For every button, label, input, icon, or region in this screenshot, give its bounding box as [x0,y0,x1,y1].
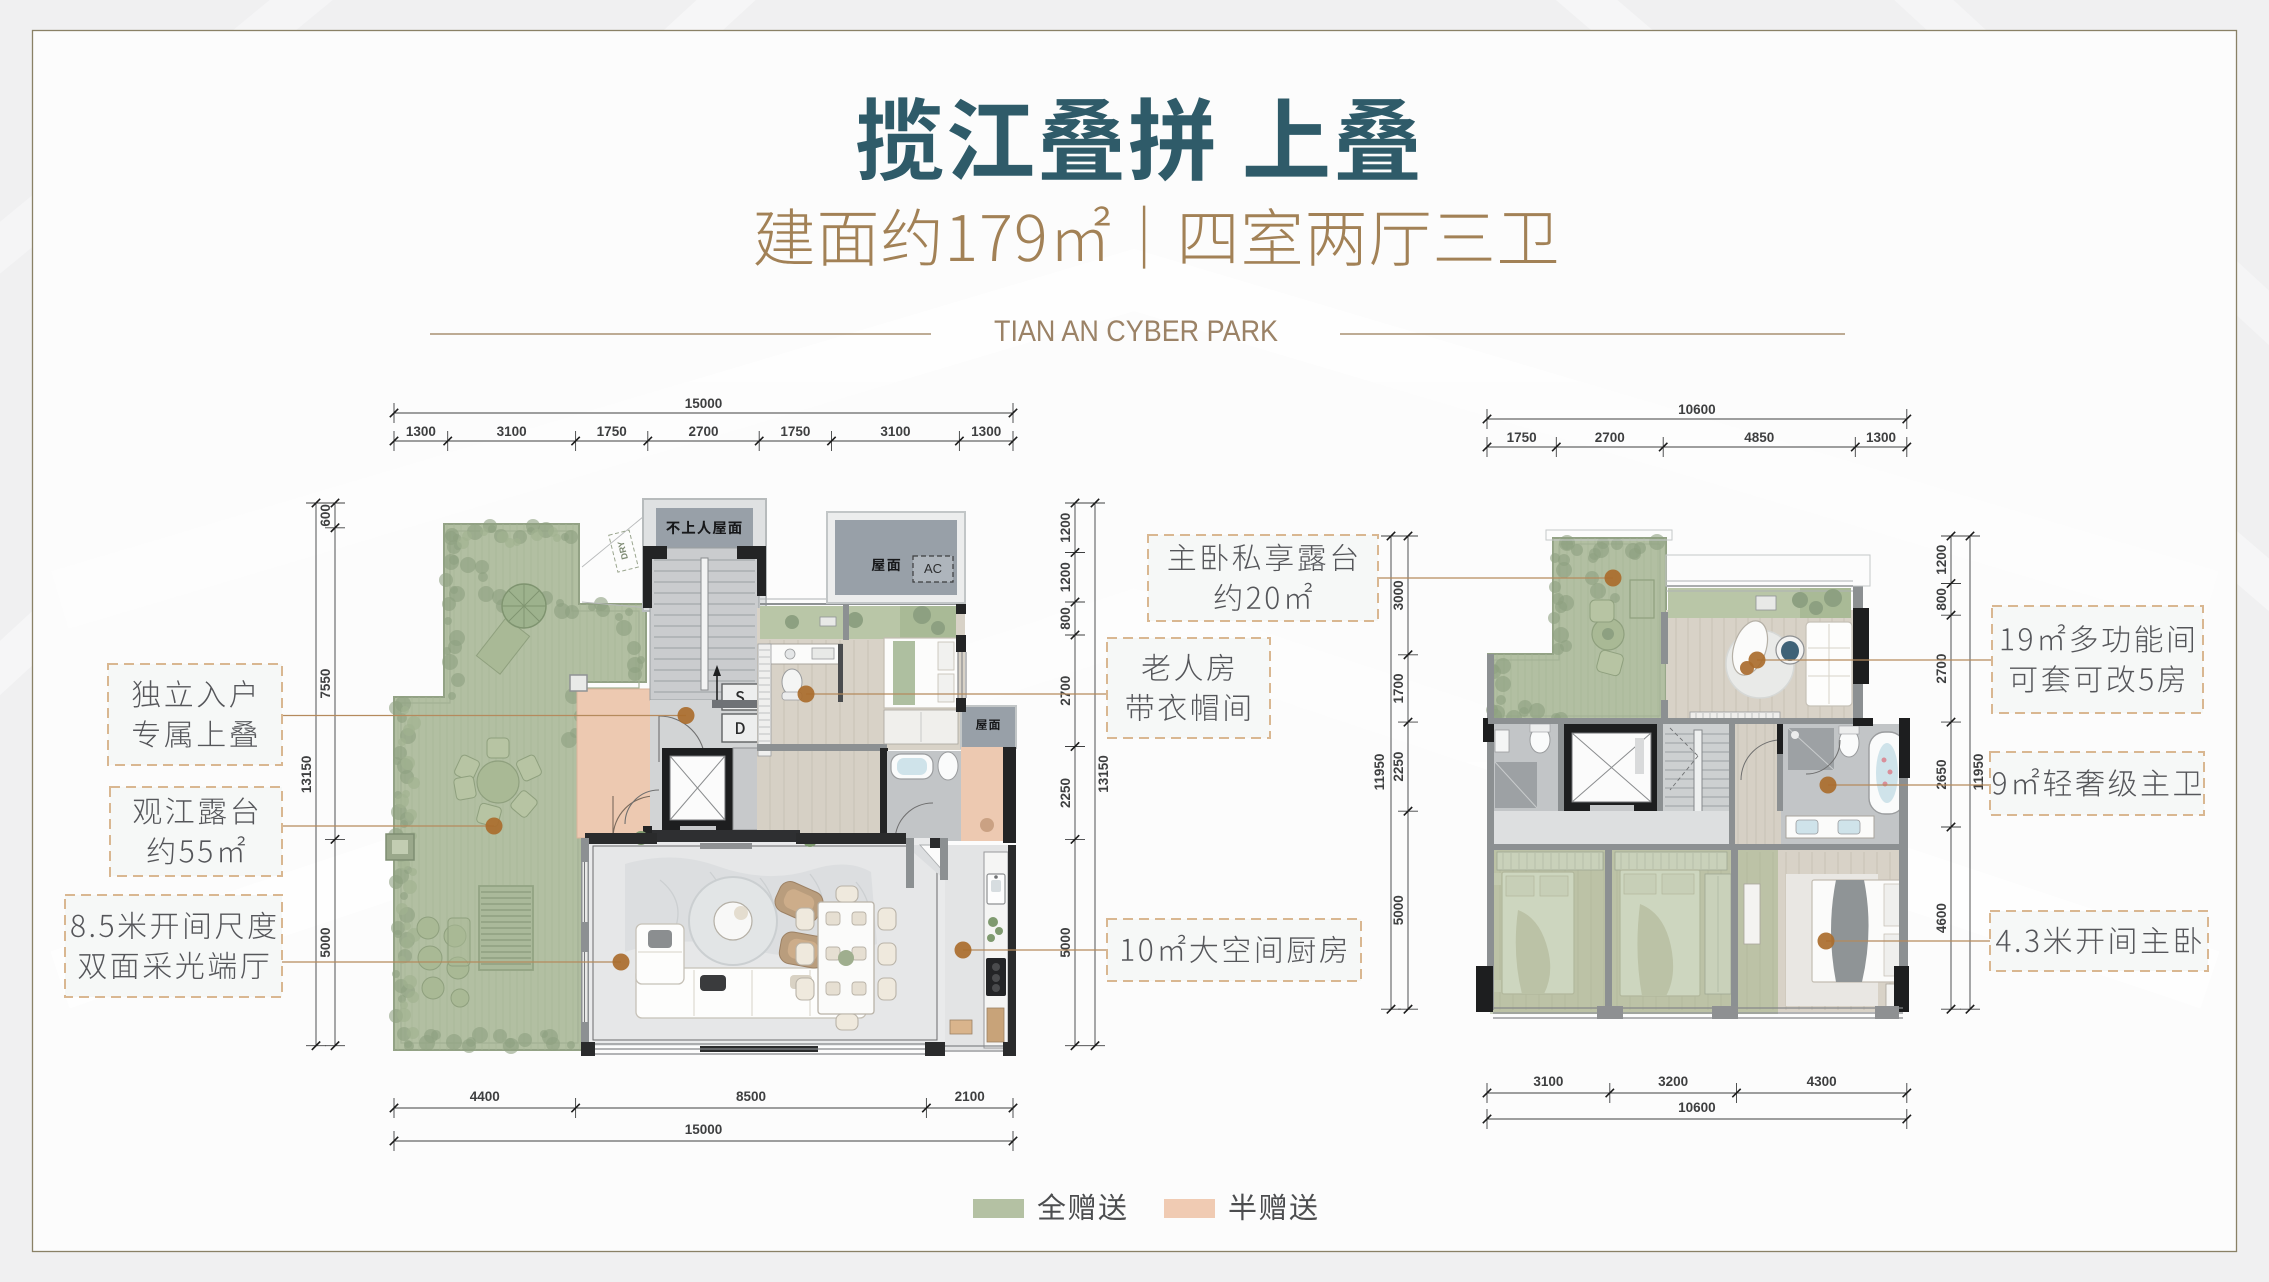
svg-text:2250: 2250 [1058,778,1073,808]
svg-text:1200: 1200 [1058,562,1073,592]
svg-text:2700: 2700 [1934,654,1949,684]
svg-text:1300: 1300 [971,424,1001,439]
svg-text:13150: 13150 [1096,755,1111,793]
svg-text:3100: 3100 [497,424,527,439]
svg-text:2250: 2250 [1391,752,1406,782]
svg-text:3100: 3100 [1533,1074,1563,1089]
svg-text:2700: 2700 [688,424,718,439]
svg-text:3100: 3100 [880,424,910,439]
svg-text:5000: 5000 [1058,928,1073,958]
svg-text:5000: 5000 [1391,895,1406,925]
svg-text:4600: 4600 [1934,903,1949,933]
svg-text:8500: 8500 [736,1089,766,1104]
svg-text:600: 600 [318,504,333,527]
svg-text:1750: 1750 [1507,430,1537,445]
svg-text:11950: 11950 [1372,754,1387,791]
svg-text:5000: 5000 [318,928,333,958]
svg-text:4850: 4850 [1744,430,1774,445]
svg-text:1300: 1300 [1866,430,1896,445]
svg-text:800: 800 [1934,588,1949,611]
svg-text:10600: 10600 [1678,402,1716,417]
svg-text:1200: 1200 [1058,513,1073,543]
svg-text:800: 800 [1058,607,1073,630]
svg-text:1200: 1200 [1934,545,1949,575]
svg-text:1750: 1750 [780,424,810,439]
svg-text:1700: 1700 [1391,673,1406,703]
svg-text:AC: AC [924,561,942,576]
svg-text:TIAN AN CYBER PARK: TIAN AN CYBER PARK [994,315,1278,348]
svg-text:15000: 15000 [685,396,723,411]
svg-text:3000: 3000 [1391,580,1406,610]
svg-text:2700: 2700 [1595,430,1625,445]
svg-text:13150: 13150 [299,756,314,794]
svg-text:4300: 4300 [1807,1074,1837,1089]
svg-text:2700: 2700 [1058,676,1073,706]
svg-text:3200: 3200 [1658,1074,1688,1089]
svg-text:1300: 1300 [406,424,436,439]
svg-text:7550: 7550 [318,669,333,699]
svg-text:10600: 10600 [1678,1100,1716,1115]
svg-text:1750: 1750 [597,424,627,439]
svg-text:2100: 2100 [955,1089,985,1104]
svg-text:4400: 4400 [470,1089,500,1104]
svg-text:15000: 15000 [685,1122,723,1137]
